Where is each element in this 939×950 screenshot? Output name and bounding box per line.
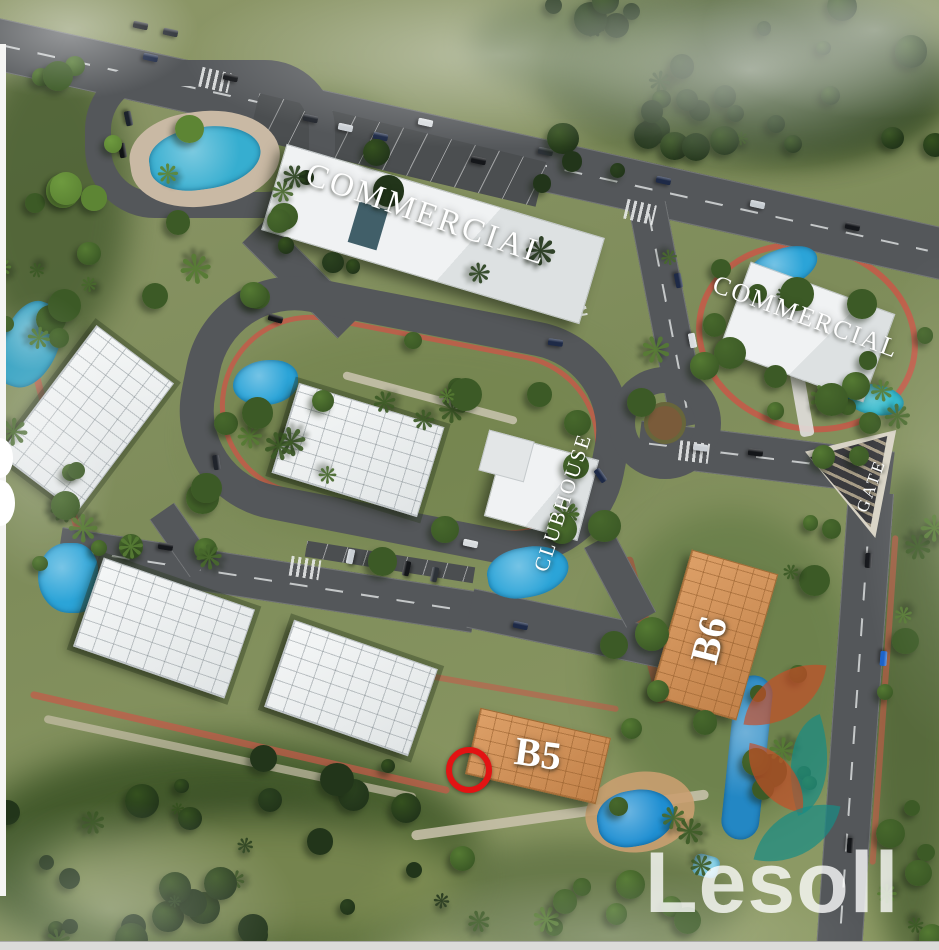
tree [917, 844, 935, 862]
tree [48, 289, 81, 322]
apartment-building [264, 620, 438, 756]
tree [278, 237, 294, 253]
tree [25, 193, 45, 213]
tree [895, 35, 928, 68]
tree [527, 382, 551, 406]
tree [623, 3, 640, 20]
tree [767, 402, 784, 419]
tree [562, 151, 583, 172]
tree [816, 41, 830, 55]
car [547, 337, 563, 346]
site-plan-image: ❋❋❋❋❋❋❋❋❋❋❋❋❋❋❋❋❋❋❋❋❋❋❋❋❋❋❋❋❋❋❋❋❋❋❋❋❋❋❋❋… [0, 0, 939, 950]
tree [174, 779, 188, 793]
tree [767, 115, 785, 133]
car [132, 20, 148, 30]
tree [307, 828, 333, 854]
tree [764, 365, 787, 388]
tree [710, 126, 740, 156]
tree [59, 868, 81, 890]
tree [621, 718, 642, 739]
tree [635, 617, 669, 651]
tree [647, 680, 669, 702]
tree [191, 473, 222, 504]
tree [320, 763, 353, 796]
palm-tree: ❋ [80, 274, 102, 293]
tree [780, 277, 814, 311]
car [879, 650, 887, 665]
tree [125, 784, 159, 818]
tree [312, 390, 334, 412]
tree [588, 510, 621, 543]
tree [606, 903, 627, 924]
tree [877, 684, 893, 700]
tree [573, 878, 590, 895]
tree [240, 282, 267, 309]
tree [32, 556, 48, 572]
tree [784, 135, 802, 153]
tree [892, 628, 919, 655]
palm-tree: ❋ [523, 232, 558, 273]
bottom-frame-bar [0, 941, 939, 950]
tree [373, 175, 404, 206]
tree [822, 519, 841, 538]
palm-tree: ❋ [876, 880, 898, 906]
tree [750, 685, 767, 702]
palm-tree: ❋ [156, 162, 184, 186]
palm-tree: ❋ [656, 246, 680, 267]
tree-grove [470, 0, 670, 90]
tree [815, 383, 848, 416]
tree [204, 867, 237, 900]
palm-tree: ❋ [164, 894, 181, 909]
tree [406, 862, 422, 878]
tree [81, 185, 106, 210]
tree [533, 174, 551, 192]
tree [812, 445, 835, 468]
tree [849, 446, 869, 466]
tree [693, 710, 718, 735]
tree [616, 870, 645, 899]
tree [322, 252, 344, 274]
red-ring-marker[interactable] [446, 747, 492, 793]
palm-tree: ❋ [411, 404, 436, 433]
tree [670, 54, 695, 79]
tree [609, 797, 627, 815]
tree [847, 289, 876, 318]
tree [789, 665, 806, 682]
palm-tree: ❋ [67, 506, 100, 545]
tree [641, 100, 664, 123]
tree [690, 352, 719, 381]
tree [748, 284, 767, 303]
running-track [421, 672, 619, 713]
tree [39, 855, 54, 870]
palm-tree: ❋ [193, 541, 229, 573]
palm-tree: ❋ [314, 464, 338, 484]
tree [905, 860, 932, 887]
car [747, 448, 763, 457]
tree [703, 313, 726, 336]
tree [917, 327, 933, 343]
tree [238, 914, 267, 943]
tree [250, 745, 277, 772]
car [692, 443, 708, 452]
car [162, 27, 178, 37]
tree [727, 105, 744, 122]
scene-layers: ❋❋❋❋❋❋❋❋❋❋❋❋❋❋❋❋❋❋❋❋❋❋❋❋❋❋❋❋❋❋❋❋❋❋❋❋❋❋❋❋… [0, 0, 939, 950]
tree [682, 133, 710, 161]
tree [714, 337, 746, 369]
tree [547, 514, 577, 544]
tree [404, 332, 421, 349]
tree [368, 547, 396, 575]
tree [881, 127, 903, 149]
tree [803, 515, 818, 530]
road-lane-dashes [839, 511, 871, 933]
car [846, 837, 854, 852]
tree [178, 807, 202, 831]
tree [242, 397, 274, 429]
palm-tree: ❋ [766, 729, 799, 767]
tree [166, 210, 191, 235]
car [864, 552, 872, 567]
car [211, 454, 220, 470]
tree [600, 631, 628, 659]
tree [821, 86, 840, 105]
tree [77, 242, 101, 266]
tree [142, 283, 168, 309]
tree [431, 516, 459, 544]
tree [363, 139, 390, 166]
tree [175, 115, 204, 144]
tree [50, 172, 83, 205]
tree [553, 889, 578, 914]
tree [564, 410, 591, 437]
palm-tree: ❋ [169, 243, 222, 294]
tree [340, 899, 355, 914]
tree [923, 133, 939, 157]
